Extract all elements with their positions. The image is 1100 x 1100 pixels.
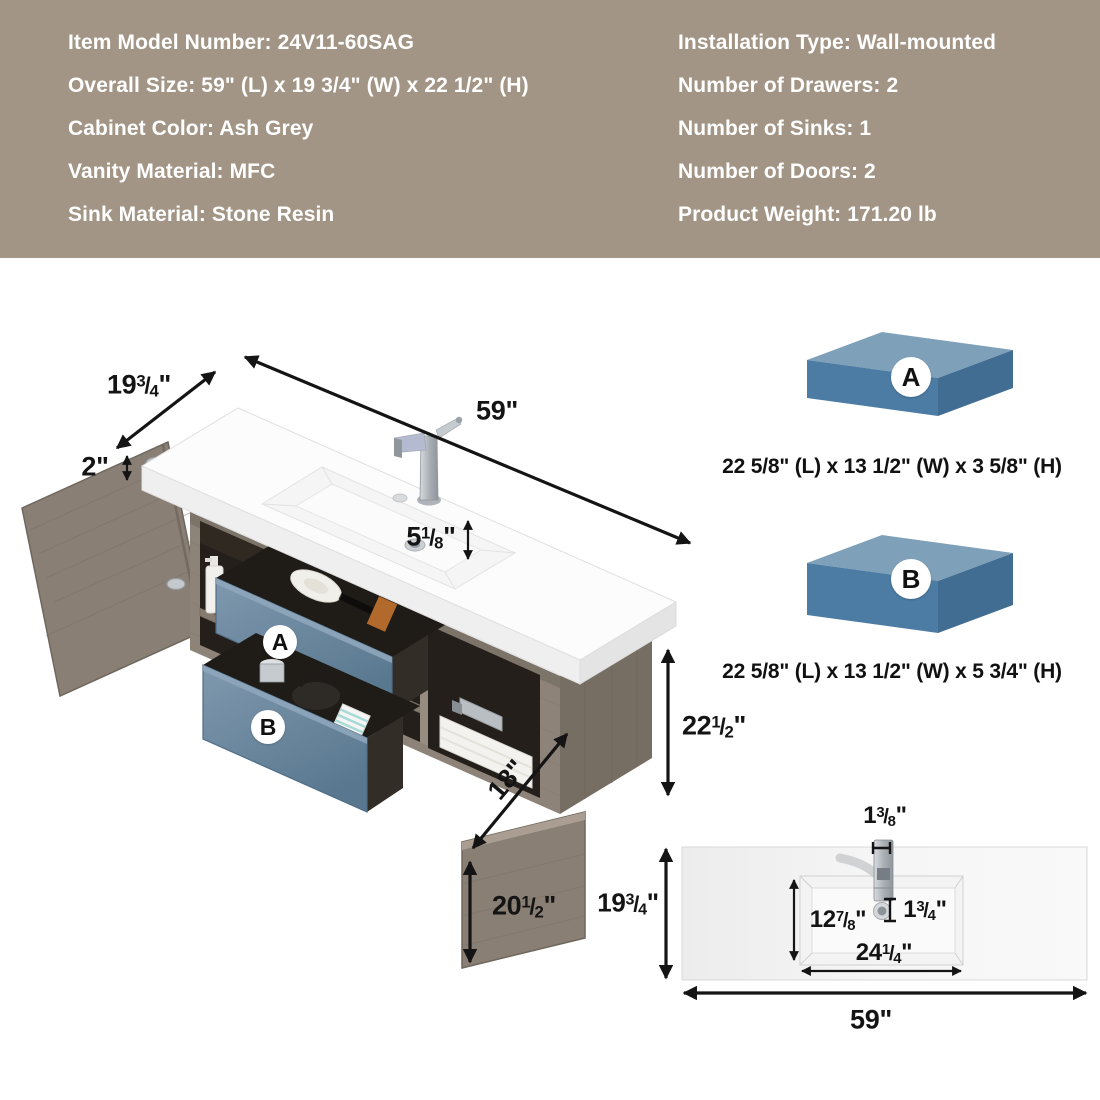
spec-line-vanity-material: Vanity Material: MFC — [68, 150, 529, 193]
product-spec-sheet: Item Model Number: 24V11-60SAG Overall S… — [0, 0, 1100, 1100]
spec-line-cabinet-color: Cabinet Color: Ash Grey — [68, 107, 529, 150]
spec-line-installation: Installation Type: Wall-mounted — [678, 21, 996, 64]
dim-label-tv-basin-width: 127/8" — [810, 906, 867, 934]
dim-label-faucet-offset: 13/8" — [863, 802, 907, 830]
box-a-badge: A — [891, 357, 931, 397]
spec-banner: Item Model Number: 24V11-60SAG Overall S… — [0, 0, 1100, 258]
dim-label-tv-depth: 193/4" — [597, 888, 659, 919]
dim-label-counter-thickness: 2" — [81, 452, 108, 483]
dim-label-drain-offset: 13/4" — [903, 896, 947, 924]
spec-line-doors: Number of Doors: 2 — [678, 150, 996, 193]
spec-line-drawers: Number of Drawers: 2 — [678, 64, 996, 107]
drawer-a-badge: A — [263, 625, 297, 659]
spec-column-left: Item Model Number: 24V11-60SAG Overall S… — [68, 21, 529, 236]
box-a-dimensions: 22 5/8" (L) x 13 1/2" (W) x 3 5/8" (H) — [722, 455, 1062, 479]
dim-label-overall-height: 221/2" — [682, 711, 746, 742]
box-b-dimensions: 22 5/8" (L) x 13 1/2" (W) x 5 3/4" (H) — [722, 660, 1062, 684]
dim-label-door-height: 201/2" — [492, 891, 556, 922]
spec-line-weight: Product Weight: 171.20 lb — [678, 193, 996, 236]
dim-label-basin-depth: 51/8" — [406, 522, 455, 553]
spec-column-right: Installation Type: Wall-mounted Number o… — [678, 21, 996, 236]
box-b-badge: B — [891, 559, 931, 599]
dim-label-tv-basin-length: 241/4" — [856, 939, 913, 967]
dim-label-shelf-depth: 18" — [482, 754, 533, 806]
dim-label-tv-length: 59" — [850, 1005, 892, 1036]
spec-line-overall-size: Overall Size: 59" (L) x 19 3/4" (W) x 22… — [68, 64, 529, 107]
spec-line-sink-material: Sink Material: Stone Resin — [68, 193, 529, 236]
dim-label-width: 193/4" — [107, 370, 171, 401]
spec-line-model: Item Model Number: 24V11-60SAG — [68, 21, 529, 64]
spec-line-sinks: Number of Sinks: 1 — [678, 107, 996, 150]
drawer-b-badge: B — [251, 710, 285, 744]
dim-label-length: 59" — [476, 396, 518, 427]
